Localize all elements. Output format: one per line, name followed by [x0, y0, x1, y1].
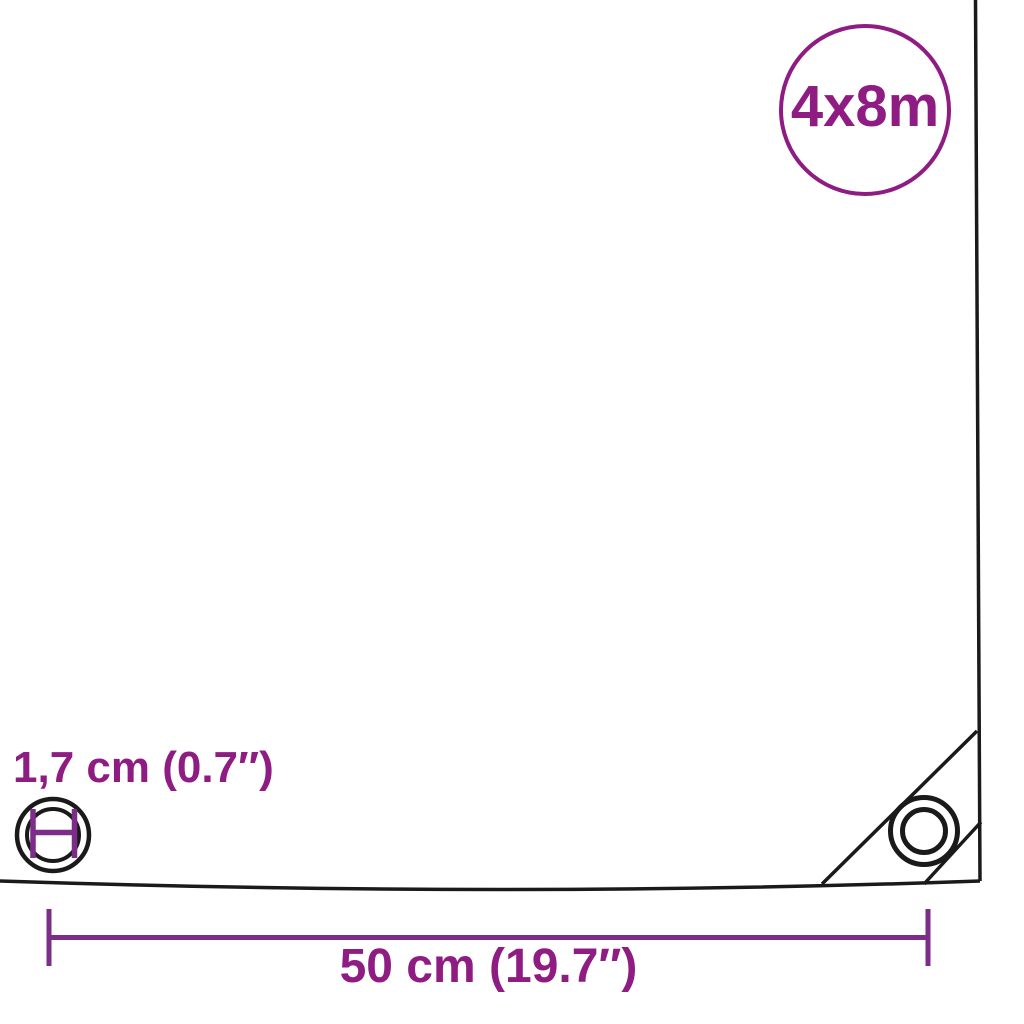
grommet-inner-ring [903, 810, 946, 853]
size-badge: 4x8m [779, 24, 951, 196]
corner-grommet-icon [891, 798, 958, 865]
edge-distance-label: 50 cm (19.7″) [49, 943, 928, 991]
tarp-right-edge-line [976, 0, 981, 881]
tarp-bottom-edge-line [0, 881, 980, 890]
eyelet-diameter-icon [17, 799, 89, 871]
size-badge-label: 4x8m [791, 78, 939, 136]
product-dimension-diagram: 4x8m 1,7 cm (0.7″) 50 cm (19.7″) [0, 0, 1024, 1024]
eyelet-diameter-label: 1,7 cm (0.7″) [13, 746, 274, 790]
